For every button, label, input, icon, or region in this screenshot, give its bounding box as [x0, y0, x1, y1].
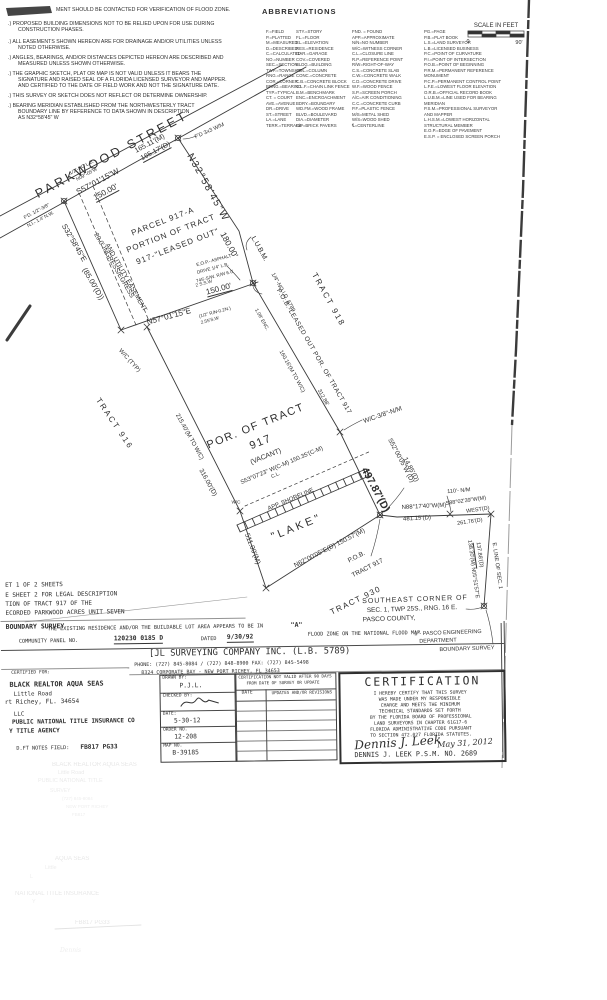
titleblock-text: LLC	[14, 712, 25, 718]
titleblock-text: ET 1 OF 2 SHEETS	[5, 582, 63, 589]
ghost-text: FB817 PG33	[75, 920, 110, 926]
ghost-text: FB817	[72, 813, 85, 818]
titleblock-text: DATED	[201, 637, 217, 643]
client-name: BLACK REALTOR AQUA SEAS	[9, 681, 103, 689]
note-line: .) THIS SURVEY OR SKETCH DOES NOT REFLEC…	[8, 94, 207, 99]
rule	[1, 667, 129, 670]
ghost-text: Little Road	[58, 771, 84, 777]
ghost-text: Y	[32, 900, 36, 906]
revision-row	[236, 739, 336, 741]
note-line: MENT SHOULD BE CONTACTED FOR VERIFICATIO…	[56, 8, 230, 13]
titleblock-text: 5-30-12	[174, 718, 201, 725]
note-line: CONSTRUCTION PHASES.	[18, 28, 84, 33]
titleblock-text: E SHEET 2 FOR LEGAL DESCRIPTION	[5, 591, 117, 599]
ghost-text: Dennis	[60, 948, 81, 954]
ghost-text: SURVEY	[50, 789, 70, 794]
titleblock-text: P.J.L.	[179, 683, 202, 690]
titleblock-text: B-39185	[172, 750, 199, 757]
titleblock-text: Little Road	[14, 691, 52, 698]
abbreviation-item: P.R.M.=PERMANENT REFERENCE MONUMENT	[424, 68, 504, 79]
ghost-text: (727) 845-8084	[62, 797, 93, 802]
abbreviation-item: WD.FM.=WOOD FRAME	[296, 106, 351, 112]
revision-row	[236, 719, 336, 721]
page-fold-line	[512, 0, 529, 425]
revision-row	[236, 709, 336, 711]
revision-row	[236, 749, 336, 751]
abbreviation-item: ℄=CENTERLINE	[352, 123, 422, 129]
titleblock-text: FB817 PG33	[80, 744, 117, 751]
abbreviation-item: B/P=BRICK PAVERS	[296, 123, 351, 129]
company-phone: PHONE: (727) 845-8084 / (727) 848-8900 F…	[134, 661, 309, 669]
abbreviations-title: ABBREVIATIONS	[262, 8, 337, 16]
revision-row	[236, 729, 336, 731]
abbreviation-item: RNG.=RANGE	[266, 73, 296, 79]
rule	[1, 618, 246, 622]
bottom-section: ET 1 OF 2 SHEETSE SHEET 2 FOR LEGAL DESC…	[0, 574, 607, 812]
titleblock-text: 9/30/92	[227, 634, 254, 642]
abbreviation-item: ENC.=ENCROACHMENT	[296, 95, 351, 101]
titleblock-text: FLOOD ZONE ON THE NATIONAL FLOOD MAP	[308, 631, 421, 638]
ink-smudge-top	[6, 6, 52, 16]
abbreviations-column: STY.=STORYFL.=FLOOREL.=ELEVATIONRES.=RES…	[296, 29, 351, 128]
titleblock-text: DATE	[242, 691, 253, 696]
titleblock-text: "A"	[291, 622, 303, 629]
titleblock-text: COMMUNITY PANEL NO.	[19, 639, 78, 645]
titleblock-text: THE EXISTING RESIDENCE AND/OR THE BUILDA…	[48, 624, 264, 632]
titleblock-text: 12-208	[174, 734, 197, 741]
ghost-text: Little	[45, 866, 57, 872]
revision-row	[237, 759, 337, 761]
note-line: AND CERTIFIED TO THE DATE OF FIELD WORK …	[18, 84, 219, 89]
titleblock-text: 120230 0185 D	[114, 636, 163, 644]
abbreviation-item: M.=MEASURED	[266, 40, 296, 46]
abbreviation-item: L.F.E.=LOWEST FLOOR ELEVATION	[424, 84, 504, 90]
abbreviation-item: BRNG.=BEARING	[266, 84, 296, 90]
south-west-line	[380, 514, 491, 517]
titleblock-text: ECORDED PARKWOOD ACRES UNIT SEVEN	[5, 609, 124, 617]
abbreviation-item: L.H.S.M.=LOWEST HORIZONTAL STRUCTURAL ME…	[424, 117, 504, 128]
titleblock-text: CHECKED BY:	[163, 694, 193, 699]
abbreviation-item: TERR.=TERRACE	[266, 123, 296, 129]
ghost-text: AQUA SEAS	[55, 856, 89, 862]
abbreviations-column: PG.=PAGEP.B.=PLAT BOOKL.S.=LAND SURVEYOR…	[424, 29, 504, 139]
note-line: AS N32°58'45" W	[18, 116, 59, 121]
company-name: [JL SURVEYING COMPANY INC. (L.B. 5789)	[149, 647, 350, 659]
titleblock-text: TION OF TRACT 917 OF THE	[5, 601, 92, 609]
abbreviation-item: C.L.F.=CHAIN LINK FENCE	[296, 84, 351, 90]
west-boundary-line	[147, 327, 240, 511]
abbreviation-item: SEC.=SECTION	[266, 62, 296, 68]
abbreviation-item: C.=CALCULATED	[266, 51, 296, 57]
ghost-text: NEW PORT RICHEY	[66, 805, 108, 810]
titleblock-text: CERTIFIED FOR:	[11, 671, 50, 676]
abbreviation-item: P.S.M.=PROFESSIONAL SURVEYOR AND MAPPER	[424, 106, 504, 117]
titleblock-text: DRAWN BY:	[162, 676, 186, 681]
plat-linework	[0, 0, 607, 1000]
scale-ninety: 90'	[515, 41, 522, 47]
abbreviations-column: FND. = FOUNDAPP.=APPROXIMATEN/N=NO NUMBE…	[352, 29, 422, 128]
survey-sheet: MENT SHOULD BE CONTACTED FOR VERIFICATIO…	[0, 0, 607, 1000]
ink-slash-left	[7, 306, 30, 340]
ghost-text: PUBLIC NATIONAL TITLE	[38, 779, 103, 785]
certification-title: CERTIFICATION	[364, 674, 480, 688]
abbreviation-item: E.S.P. = ENCLOSED SCREEN PORCH	[424, 134, 504, 140]
titleblock-text: PUBLIC NATIONAL TITLE INSURANCE CO	[12, 718, 135, 726]
scale-zero: 0	[466, 40, 469, 46]
titleblock-text: rt Richey, FL. 34654	[5, 699, 80, 707]
abbreviations-column: F.=FIELDP.=PLATTEDM.=MEASUREDD.=DESCRIBE…	[266, 29, 296, 128]
abbreviation-item: L.U.B.M.=LINE USED FOR BEARING MERIDIAN	[424, 95, 504, 106]
ghost-text: BLACK REALTOR AQUA SEAS	[52, 762, 137, 768]
ghost-text: NATIONAL TITLE INSURANCE	[15, 891, 99, 897]
abbreviation-item: CT. = COURT	[266, 95, 296, 101]
titleblock-text: Y TITLE AGENCY	[9, 728, 60, 735]
titleblock-text: D.FT NOTES FIELD:	[16, 746, 69, 752]
scale-bar-label: SCALE IN FEET	[474, 23, 518, 29]
note-line: MEASURED UNLESS SHOWN OTHERWISE.	[18, 62, 125, 67]
note-line: NOTED OTHERWISE.	[18, 46, 70, 51]
titleblock-text: UPDATES AND/OR REVISIONS	[272, 690, 333, 695]
ghost-text: L	[30, 875, 33, 881]
plat-label: W/C	[232, 501, 241, 506]
